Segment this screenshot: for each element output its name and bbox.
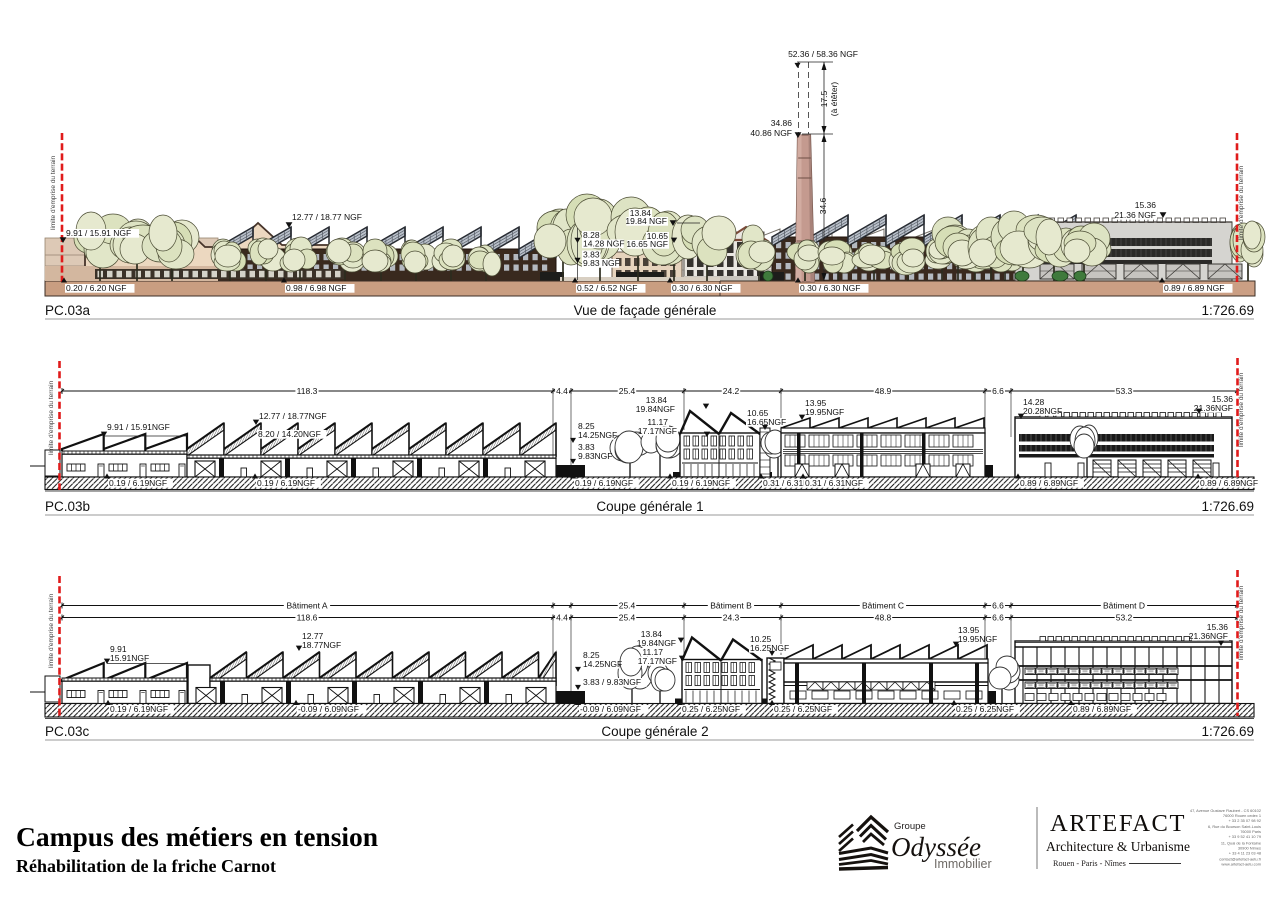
svg-text:PC.03c: PC.03c (45, 724, 90, 739)
svg-text:Bâtiment B: Bâtiment B (710, 600, 752, 610)
svg-text:0.89 / 6.89NGF: 0.89 / 6.89NGF (1200, 478, 1258, 488)
svg-text:24.3: 24.3 (723, 612, 740, 622)
svg-text:21.36NGF: 21.36NGF (1189, 631, 1228, 641)
svg-text:16.65 NGF: 16.65 NGF (626, 239, 668, 249)
svg-text:PC.03b: PC.03b (45, 499, 90, 514)
svg-text:0.52 / 6.52 NGF: 0.52 / 6.52 NGF (577, 283, 637, 293)
svg-text:0.30 / 6.30 NGF: 0.30 / 6.30 NGF (800, 283, 860, 293)
svg-text:19.95NGF: 19.95NGF (805, 407, 844, 417)
svg-text:19.95NGF: 19.95NGF (958, 634, 997, 644)
svg-text:+ 33 4 11 23 03 48: + 33 4 11 23 03 48 (1229, 850, 1261, 855)
svg-text:limite d'emprise du terrain: limite d'emprise du terrain (1238, 372, 1245, 447)
svg-text:20.28NGF: 20.28NGF (1023, 406, 1062, 416)
svg-text:6.6: 6.6 (992, 612, 1004, 622)
svg-text:15.36: 15.36 (1135, 200, 1157, 210)
svg-text:6.6: 6.6 (992, 386, 1004, 396)
svg-text:21.36 NGF: 21.36 NGF (1114, 210, 1156, 220)
svg-text:0.19 / 6.19NGF: 0.19 / 6.19NGF (257, 478, 315, 488)
svg-text:1:726.69: 1:726.69 (1201, 499, 1254, 514)
svg-text:-0.09 / 6.09NGF: -0.09 / 6.09NGF (580, 704, 641, 714)
svg-text:Bâtiment C: Bâtiment C (862, 600, 904, 610)
svg-text:15.91NGF: 15.91NGF (110, 653, 149, 663)
svg-text:118.3: 118.3 (297, 386, 318, 396)
svg-text:19.84NGF: 19.84NGF (636, 404, 675, 414)
svg-text:3.83 / 9.83NGF: 3.83 / 9.83NGF (583, 677, 641, 687)
svg-text:34.6: 34.6 (818, 197, 828, 214)
svg-text:4.4: 4.4 (556, 612, 568, 622)
svg-text:Groupe: Groupe (894, 821, 926, 832)
svg-text:53.3: 53.3 (1116, 386, 1133, 396)
svg-text:limite d'emprise du terrain: limite d'emprise du terrain (50, 155, 57, 230)
svg-text:0.30 / 6.30 NGF: 0.30 / 6.30 NGF (672, 283, 732, 293)
svg-text:0.19 / 6.19NGF: 0.19 / 6.19NGF (109, 478, 167, 488)
svg-text:limite d'emprise du terrain: limite d'emprise du terrain (48, 380, 55, 455)
svg-text:Architecture & Urbanisme: Architecture & Urbanisme (1046, 839, 1190, 854)
svg-text:52.36 / 58.36 NGF: 52.36 / 58.36 NGF (788, 49, 858, 59)
svg-text:1:726.69: 1:726.69 (1201, 724, 1254, 739)
svg-text:34.86: 34.86 (771, 118, 793, 128)
svg-text:0.19 / 6.19NGF: 0.19 / 6.19NGF (575, 478, 633, 488)
svg-text:Coupe générale 2: Coupe générale 2 (601, 724, 708, 739)
svg-text:118.6: 118.6 (297, 612, 318, 622)
svg-text:0.25 / 6.25NGF: 0.25 / 6.25NGF (774, 704, 832, 714)
svg-text:0.31 / 6.31NGF: 0.31 / 6.31NGF (805, 478, 863, 488)
svg-text:Bâtiment D: Bâtiment D (1103, 600, 1145, 610)
svg-text:Bâtiment A: Bâtiment A (286, 600, 327, 610)
svg-text:Campus des métiers en tension: Campus des métiers en tension (16, 821, 378, 852)
svg-text:+ 33 9 52 41 10 79: + 33 9 52 41 10 79 (1228, 834, 1261, 839)
svg-text:+ 33 2 35 07 98 92: + 33 2 35 07 98 92 (1228, 818, 1261, 823)
svg-text:9.83NGF: 9.83NGF (578, 451, 613, 461)
svg-text:25.4: 25.4 (619, 600, 636, 610)
svg-text:4.4: 4.4 (556, 386, 568, 396)
svg-text:1:726.69: 1:726.69 (1201, 303, 1254, 318)
svg-text:48.9: 48.9 (875, 386, 892, 396)
svg-text:0.89 / 6.89NGF: 0.89 / 6.89NGF (1073, 704, 1131, 714)
svg-text:9.91 / 15.91 NGF: 9.91 / 15.91 NGF (66, 228, 131, 238)
svg-text:Immobilier: Immobilier (934, 857, 992, 871)
svg-text:0.19 / 6.19NGF: 0.19 / 6.19NGF (672, 478, 730, 488)
svg-text:ARTEFACT: ARTEFACT (1050, 810, 1186, 837)
svg-text:14.25NGF: 14.25NGF (583, 659, 622, 669)
svg-text:PC.03a: PC.03a (45, 303, 91, 318)
svg-text:14.25NGF: 14.25NGF (578, 430, 617, 440)
svg-text:-0.09 / 6.09NGF: -0.09 / 6.09NGF (298, 704, 359, 714)
svg-text:(à étêter): (à étêter) (829, 82, 839, 117)
svg-text:40.86 NGF: 40.86 NGF (750, 128, 792, 138)
svg-text:0.25 / 6.25NGF: 0.25 / 6.25NGF (956, 704, 1014, 714)
svg-text:53.2: 53.2 (1116, 612, 1133, 622)
svg-text:0.31 / 6.31N: 0.31 / 6.31N (763, 478, 809, 488)
svg-text:18.77NGF: 18.77NGF (302, 640, 341, 650)
svg-text:25.4: 25.4 (619, 612, 636, 622)
svg-text:0.89 / 6.89 NGF: 0.89 / 6.89 NGF (1164, 283, 1224, 293)
svg-text:limite d'emprise du terrain: limite d'emprise du terrain (1238, 165, 1245, 240)
svg-text:12.77 / 18.77NGF: 12.77 / 18.77NGF (259, 411, 327, 421)
svg-text:Réhabilitation de la friche Ca: Réhabilitation de la friche Carnot (16, 856, 276, 876)
svg-text:Coupe générale 1: Coupe générale 1 (596, 499, 703, 514)
svg-text:14.28 NGF: 14.28 NGF (583, 239, 625, 249)
svg-text:17.17NGF: 17.17NGF (638, 656, 677, 666)
svg-text:0.19 / 6.19NGF: 0.19 / 6.19NGF (110, 704, 168, 714)
svg-text:8.20 / 14.20NGF: 8.20 / 14.20NGF (258, 429, 321, 439)
svg-text:0.25 / 6.25NGF: 0.25 / 6.25NGF (682, 704, 740, 714)
svg-text:25.4: 25.4 (619, 386, 636, 396)
svg-text:0.98 / 6.98 NGF: 0.98 / 6.98 NGF (286, 283, 346, 293)
svg-text:19.84 NGF: 19.84 NGF (625, 216, 667, 226)
svg-text:17.17NGF: 17.17NGF (638, 426, 677, 436)
svg-text:6.6: 6.6 (992, 600, 1004, 610)
svg-text:17.5: 17.5 (819, 90, 829, 107)
svg-text:Rouen - Paris - Nîmes: Rouen - Paris - Nîmes (1053, 859, 1126, 868)
svg-text:9.91 / 15.91NGF: 9.91 / 15.91NGF (107, 422, 170, 432)
svg-text:0.89 / 6.89NGF: 0.89 / 6.89NGF (1020, 478, 1078, 488)
svg-text:www.artefact-aetu.com: www.artefact-aetu.com (1221, 862, 1261, 867)
svg-text:0.20 / 6.20 NGF: 0.20 / 6.20 NGF (66, 283, 126, 293)
svg-text:48.8: 48.8 (875, 612, 892, 622)
svg-text:24.2: 24.2 (723, 386, 740, 396)
svg-text:Vue de façade générale: Vue de façade générale (574, 303, 717, 318)
svg-text:limite d'emprise du terrain: limite d'emprise du terrain (1238, 585, 1245, 660)
svg-text:12.77 / 18.77 NGF: 12.77 / 18.77 NGF (292, 212, 362, 222)
svg-text:9.83 NGF: 9.83 NGF (583, 258, 620, 268)
svg-text:limite d'emprise du terrain: limite d'emprise du terrain (48, 593, 55, 668)
